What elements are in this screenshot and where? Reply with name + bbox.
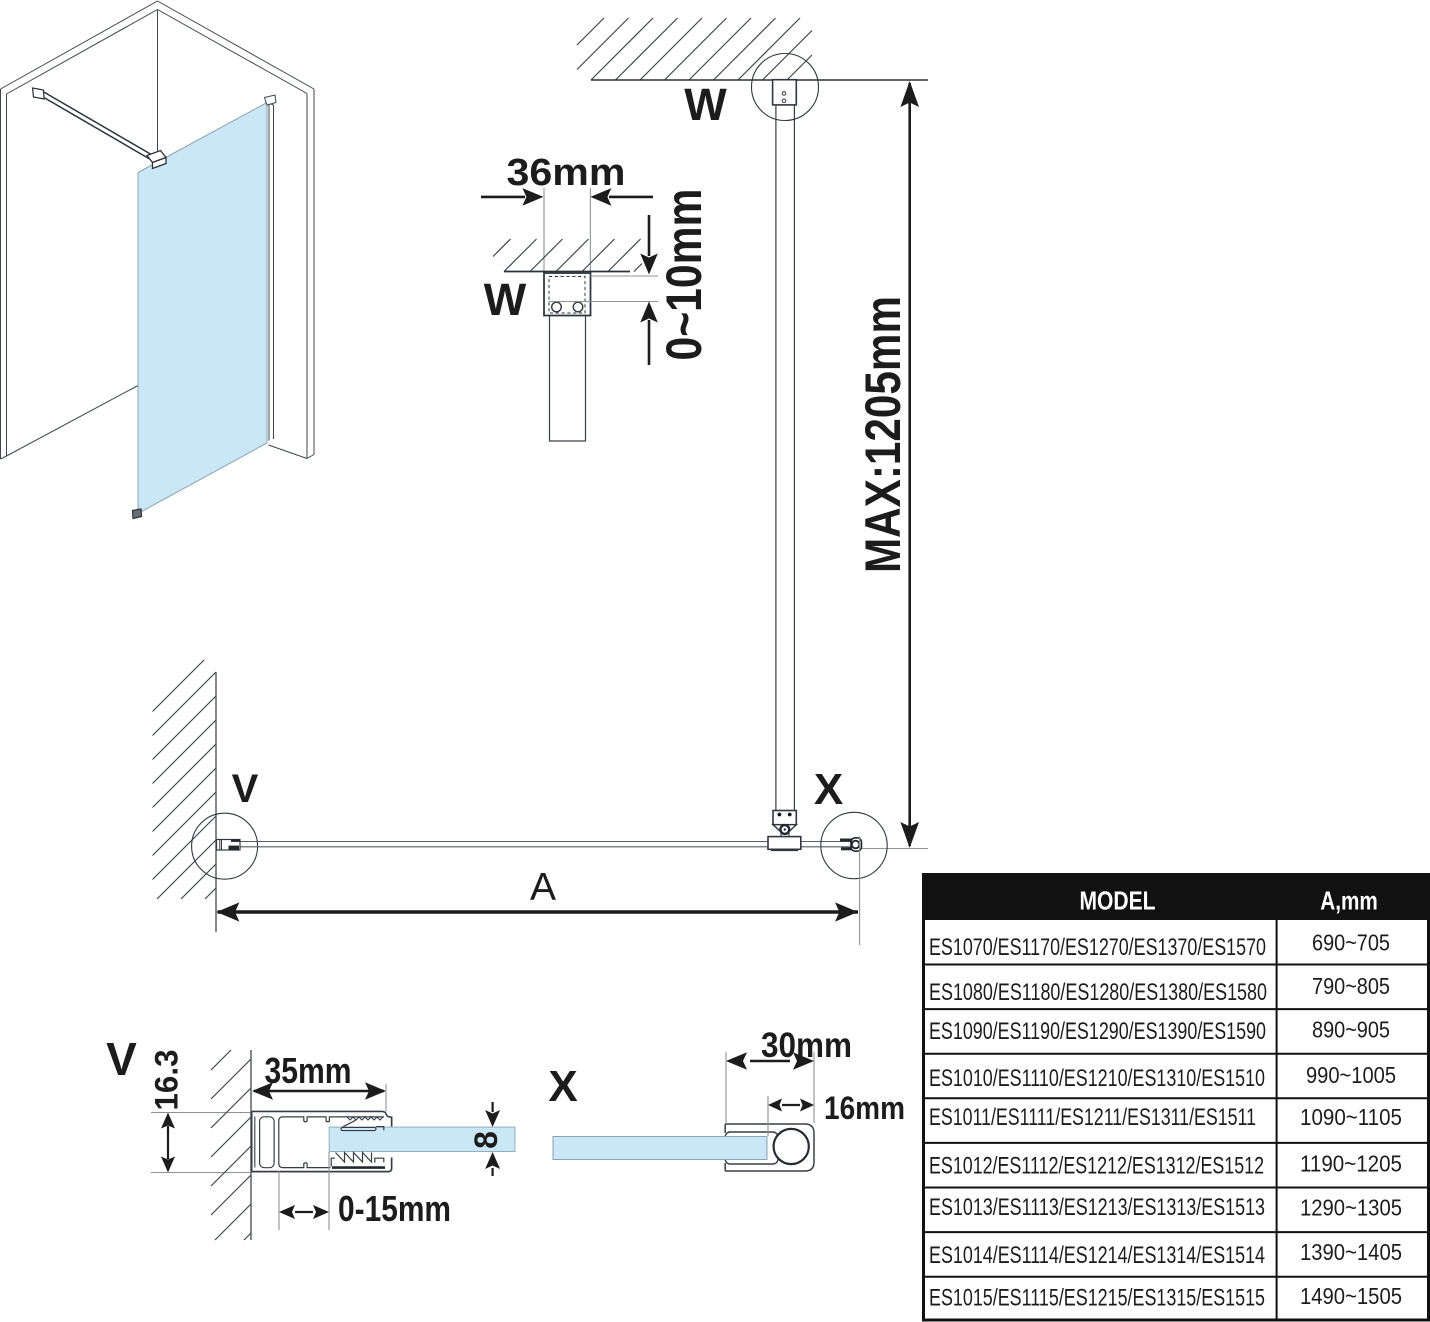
svg-text:ES1010/ES1110/ES1210/ES1310/ES: ES1010/ES1110/ES1210/ES1310/ES1510 [929,1065,1265,1092]
svg-text:ES1080/ES1180/ES1280/ES1380/ES: ES1080/ES1180/ES1280/ES1380/ES1580 [929,979,1267,1006]
svg-text:ES1070/ES1170/ES1270/ES1370/ES: ES1070/ES1170/ES1270/ES1370/ES1570 [929,934,1266,961]
svg-text:0~10mm: 0~10mm [656,189,712,361]
svg-text:16.3: 16.3 [149,1050,185,1111]
svg-text:690~705: 690~705 [1312,930,1390,956]
svg-text:16mm: 16mm [824,1090,905,1126]
svg-text:MODEL: MODEL [1080,886,1156,916]
svg-text:ES1090/ES1190/ES1290/ES1390/ES: ES1090/ES1190/ES1290/ES1390/ES1590 [929,1018,1266,1045]
svg-text:1490~1505: 1490~1505 [1300,1283,1402,1309]
svg-text:0-15mm: 0-15mm [338,1188,451,1229]
svg-text:V: V [106,1033,137,1085]
svg-text:ES1015/ES1115/ES1215/ES1315/ES: ES1015/ES1115/ES1215/ES1315/ES1515 [929,1284,1265,1311]
svg-text:ES1014/ES1114/ES1214/ES1314/ES: ES1014/ES1114/ES1214/ES1314/ES1514 [929,1242,1265,1269]
svg-text:1290~1305: 1290~1305 [1300,1195,1402,1221]
svg-text:ES1011/ES1111/ES1211/ES1311/ES: ES1011/ES1111/ES1211/ES1311/ES1511 [929,1104,1256,1131]
svg-text:1390~1405: 1390~1405 [1300,1239,1402,1265]
svg-text:MAX:1205mm: MAX:1205mm [855,296,911,573]
svg-text:A,mm: A,mm [1320,886,1378,916]
svg-text:1090~1105: 1090~1105 [1300,1104,1402,1130]
svg-text:ES1012/ES1112/ES1212/ES1312/ES: ES1012/ES1112/ES1212/ES1312/ES1512 [929,1153,1264,1180]
svg-text:ES1013/ES1113/ES1213/ES1313/ES: ES1013/ES1113/ES1213/ES1313/ES1513 [929,1194,1265,1221]
svg-text:A: A [530,866,556,909]
svg-text:W: W [684,79,727,130]
svg-text:X: X [814,765,843,814]
svg-text:1190~1205: 1190~1205 [1300,1150,1402,1176]
svg-text:W: W [484,274,527,325]
svg-text:35mm: 35mm [265,1050,352,1091]
svg-text:790~805: 790~805 [1312,973,1390,999]
svg-text:X: X [548,1062,577,1111]
svg-text:36mm: 36mm [507,152,626,194]
svg-text:V: V [232,767,259,811]
svg-text:8: 8 [468,1131,504,1149]
svg-text:990~1005: 990~1005 [1306,1062,1396,1088]
svg-text:890~905: 890~905 [1312,1017,1390,1043]
